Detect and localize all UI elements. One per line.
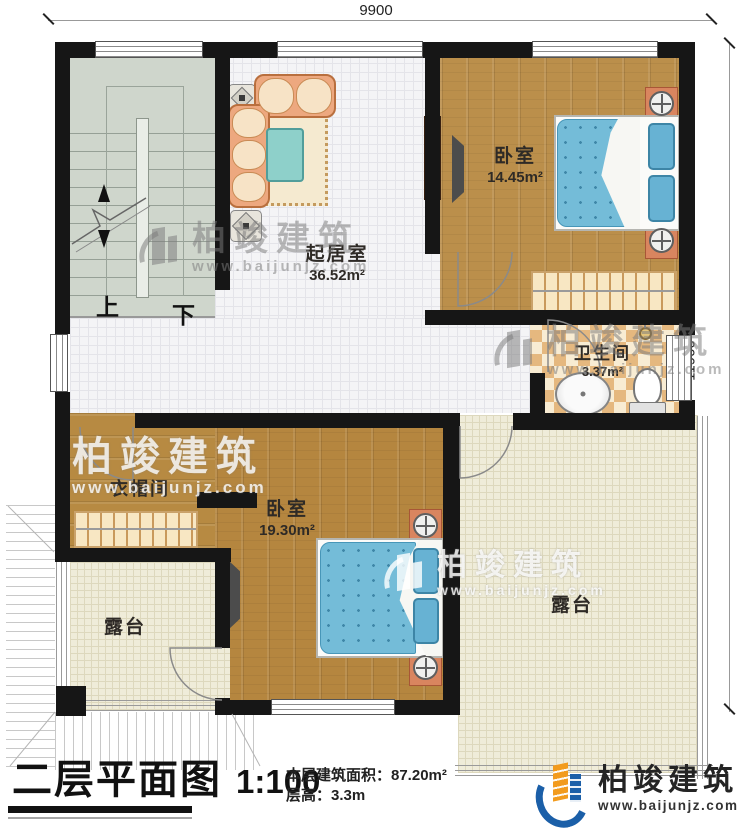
dimension-line-top (48, 20, 712, 21)
stairs-up-label: 上 (96, 288, 119, 322)
company-logo-url: www.baijunjz.com (598, 798, 739, 813)
sofa-cushion (296, 78, 332, 114)
wall (215, 548, 230, 648)
window (95, 41, 203, 58)
lamp-icon (649, 91, 674, 116)
room-area: 3.37m² (535, 364, 670, 380)
terrace-right-label: 露台 (512, 594, 632, 618)
wall (679, 42, 695, 335)
sofa-cushion (258, 78, 294, 114)
room-name: 露台 (512, 594, 632, 618)
bed-pillow (648, 123, 675, 170)
room-area: 14.45m² (435, 169, 595, 188)
window (277, 41, 423, 58)
shower-head-icon (639, 327, 652, 340)
title-underline (8, 806, 192, 813)
room-name: 卧室 (207, 498, 367, 522)
dimension-top-value: 9900 (348, 2, 404, 19)
bedroom-top-label: 卧室 14.45m² (435, 145, 595, 188)
bed-pillow (648, 175, 675, 222)
room-name: 露台 (65, 616, 185, 640)
room-name: 衣帽间 (80, 478, 200, 501)
wall (55, 548, 231, 562)
sofa-cushion (232, 172, 266, 202)
bedroom-bottom-label: 卧室 19.30m² (207, 498, 367, 541)
lamp-icon (649, 228, 674, 253)
window (532, 41, 658, 58)
wardrobe (74, 511, 198, 548)
company-logo: 柏竣建筑 www.baijunjz.com (536, 762, 739, 818)
plan-title: 二层平面图 (12, 760, 222, 800)
terrace-left-label: 露台 (65, 616, 185, 640)
wall (513, 413, 695, 430)
floor-plan-canvas: 9900 11900 上 下 (0, 0, 750, 830)
terrace-right-railing-right (697, 416, 711, 779)
plan-height-note: 层高：3.3m (286, 786, 447, 806)
coffee-table (266, 128, 304, 182)
plan-area-note: 本层建筑面积：87.20m² (286, 766, 447, 786)
roof-hatch-left (6, 505, 55, 771)
wall (530, 310, 545, 322)
lamp-bulb-icon (243, 223, 249, 229)
wall (55, 392, 70, 562)
lamp-table (230, 210, 262, 242)
company-logo-icon (536, 762, 590, 818)
lamp-bulb-icon (239, 95, 245, 101)
bed-pillow (413, 598, 439, 644)
cloakroom-label: 衣帽间 (80, 478, 200, 501)
stairs-down-label: 下 (172, 296, 195, 330)
title-underline-thin (8, 817, 192, 819)
lamp-icon (413, 513, 438, 538)
plan-notes: 本层建筑面积：87.20m² 层高：3.3m (286, 766, 447, 806)
sofa-cushion (232, 108, 266, 138)
living-room-label: 起居室 36.52m² (257, 243, 417, 286)
wall (395, 700, 460, 715)
bed-pillow (413, 548, 439, 594)
window (50, 334, 68, 392)
lamp-icon (413, 655, 438, 680)
wardrobe (531, 271, 677, 312)
room-name: 起居室 (257, 243, 417, 267)
sofa-cushion (232, 140, 266, 170)
wall (215, 700, 271, 715)
hallway-floor (70, 318, 530, 413)
dimension-tick (705, 13, 717, 25)
bathroom-label: 卫生间 3.37m² (535, 343, 670, 381)
wall (135, 413, 458, 428)
terrace-corner-column (56, 686, 86, 716)
wall (55, 42, 70, 334)
dimension-line-right (729, 44, 730, 712)
room-area: 19.30m² (207, 522, 367, 541)
wall (443, 413, 460, 715)
dimension-tick (42, 13, 54, 25)
room-area: 36.52m² (257, 267, 417, 286)
wall (425, 310, 695, 325)
wall (215, 42, 230, 290)
plan-title-row: 二层平面图 1:100 (12, 760, 320, 800)
window (271, 699, 395, 715)
company-logo-brand: 柏竣建筑 (598, 764, 738, 797)
stair-center-rail (136, 118, 149, 298)
room-name: 卧室 (435, 145, 595, 169)
room-name: 卫生间 (535, 343, 670, 364)
